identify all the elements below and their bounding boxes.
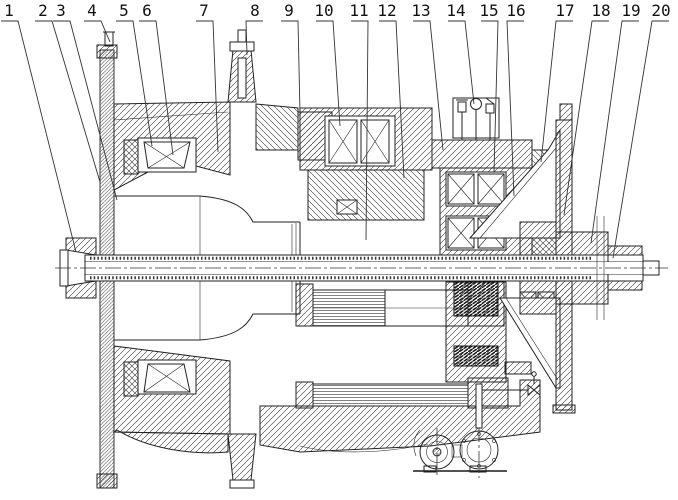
callout-leader-14 xyxy=(448,21,474,104)
carrier-column-bottom xyxy=(228,434,256,488)
callout-number-1: 1 xyxy=(4,1,14,20)
oil-pipe xyxy=(476,384,482,428)
callout-leader-19 xyxy=(591,21,639,243)
carrier-column-top xyxy=(228,30,256,102)
callout-number-5: 5 xyxy=(119,1,129,20)
callout-number-7: 7 xyxy=(199,1,209,20)
callout-number-6: 6 xyxy=(142,1,152,20)
callout-leader-1 xyxy=(1,21,76,252)
hub-housing-bottom xyxy=(114,346,230,453)
callout-number-3: 3 xyxy=(56,1,66,20)
gauge-box xyxy=(453,98,499,140)
gearbox-cross-section-drawing: 1234567891011121314151617181920 xyxy=(0,0,678,500)
callout-number-14: 14 xyxy=(446,1,465,20)
callout-number-17: 17 xyxy=(555,1,574,20)
callout-number-8: 8 xyxy=(250,1,260,20)
callout-number-18: 18 xyxy=(591,1,610,20)
callout-number-4: 4 xyxy=(87,1,97,20)
callout-number-19: 19 xyxy=(621,1,640,20)
callout-number-10: 10 xyxy=(314,1,333,20)
callout-number-15: 15 xyxy=(479,1,498,20)
engineering-drawing-canvas: 1234567891011121314151617181920 xyxy=(0,0,678,500)
callout-number-12: 12 xyxy=(377,1,396,20)
callout-number-16: 16 xyxy=(506,1,525,20)
callout-number-13: 13 xyxy=(411,1,430,20)
callout-number-2: 2 xyxy=(38,1,48,20)
callout-leader-9 xyxy=(281,21,300,114)
callout-leader-2 xyxy=(35,21,100,182)
callout-number-9: 9 xyxy=(284,1,294,20)
callout-leader-20 xyxy=(613,21,669,258)
callout-number-11: 11 xyxy=(349,1,368,20)
callout-number-20: 20 xyxy=(651,1,670,20)
